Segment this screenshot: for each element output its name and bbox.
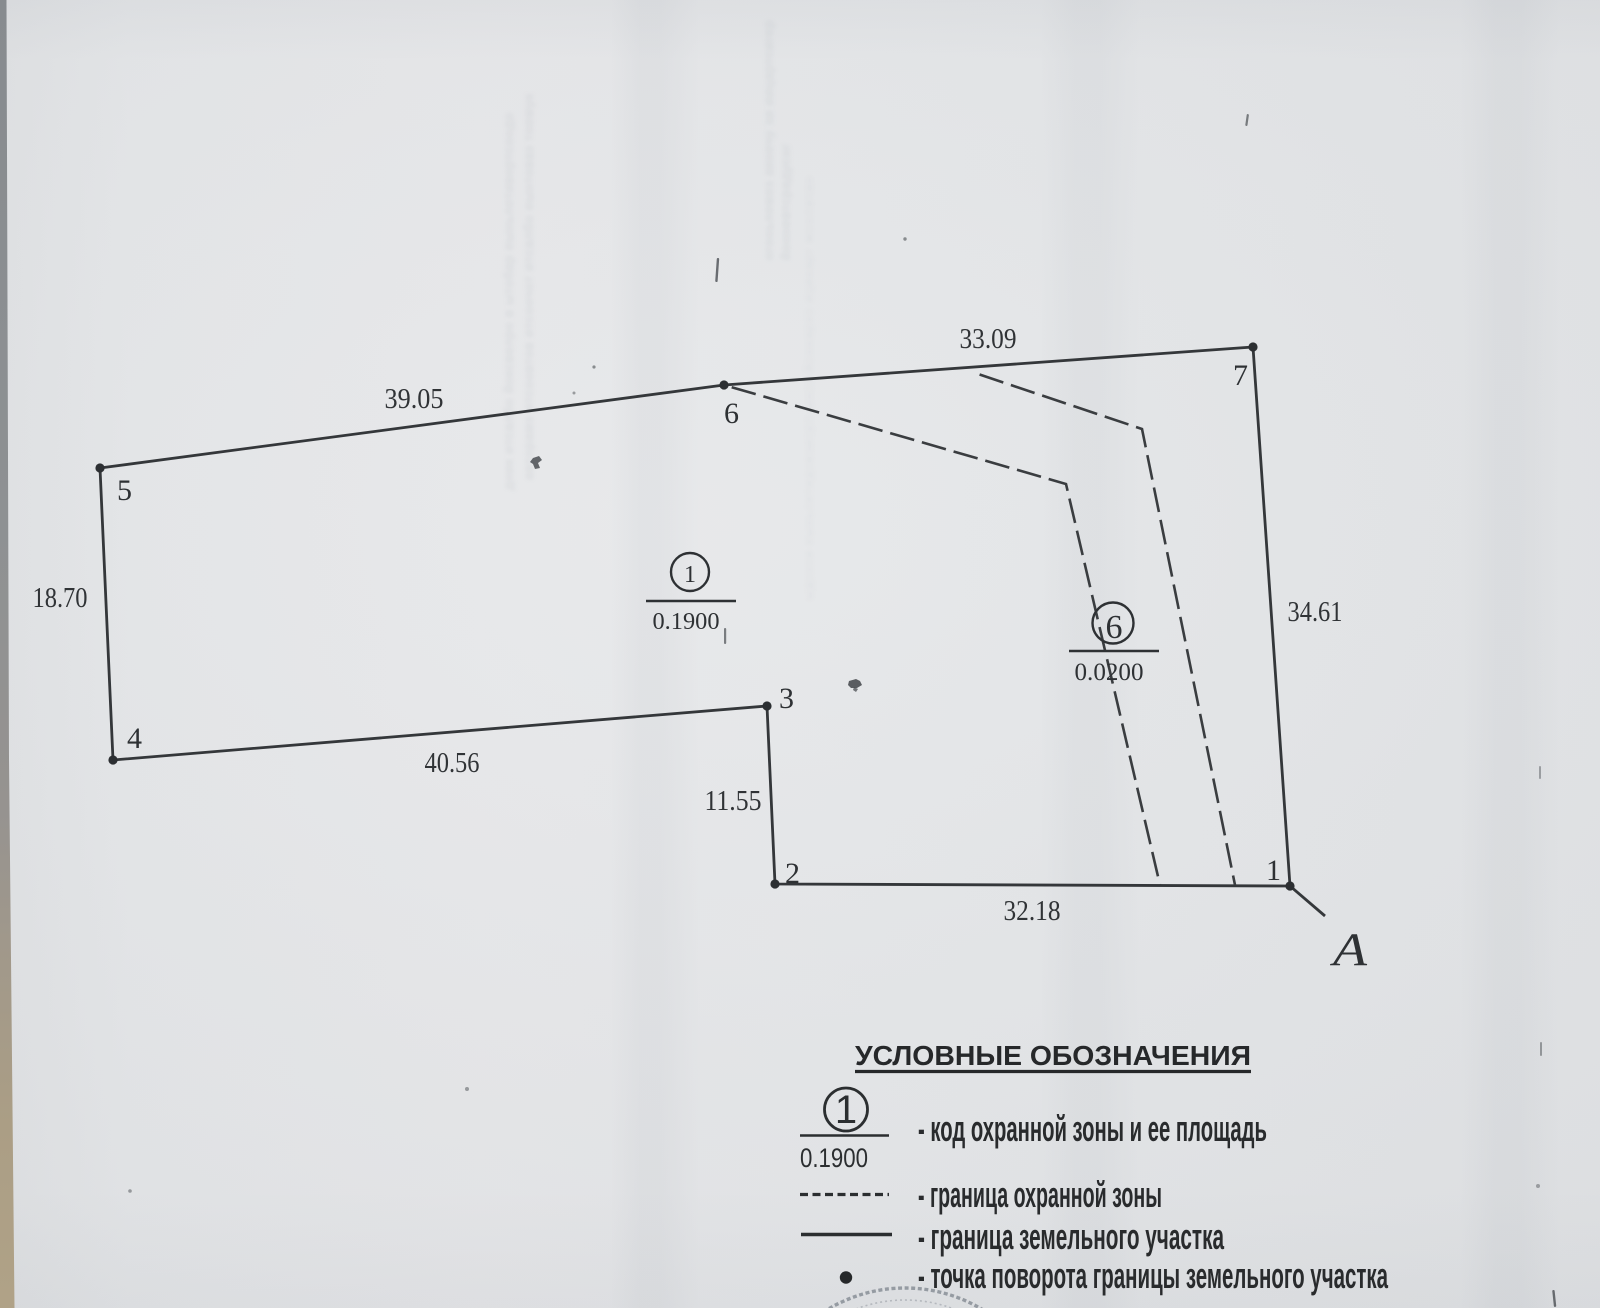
svg-text:- граница охранной зоны: - граница охранной зоны: [918, 1174, 1162, 1215]
svg-text:A: A: [1329, 924, 1367, 976]
svg-text:0.1900: 0.1900: [800, 1143, 868, 1173]
svg-text:- точка поворота границы земел: - точка поворота границы земельного учас…: [918, 1255, 1389, 1296]
svg-text:6: 6: [724, 397, 739, 430]
svg-text:1: 1: [835, 1088, 857, 1132]
svg-text:2: 2: [785, 857, 800, 890]
svg-text:УСЛОВНЫЕ ОБОЗНАЧЕНИЯ: УСЛОВНЫЕ ОБОЗНАЧЕНИЯ: [855, 1040, 1251, 1071]
svg-text:5: 5: [117, 474, 132, 507]
svg-text:7: 7: [1233, 359, 1248, 392]
svg-text:0.0200: 0.0200: [1075, 659, 1144, 686]
svg-text:11.55: 11.55: [705, 786, 762, 817]
svg-text:4: 4: [127, 722, 142, 755]
svg-text:0.1900: 0.1900: [653, 609, 720, 635]
svg-text:- код охранной зоны и ее площа: - код охранной зоны и ее площадь: [918, 1108, 1267, 1149]
svg-text:40.56: 40.56: [425, 748, 480, 779]
svg-text:1: 1: [1266, 854, 1281, 887]
svg-text:39.05: 39.05: [385, 384, 444, 415]
svg-text:32.18: 32.18: [1004, 896, 1061, 927]
svg-text:3: 3: [779, 682, 794, 715]
svg-text:- граница земельного участка: - граница земельного участка: [918, 1216, 1225, 1257]
svg-text:6: 6: [1106, 609, 1123, 646]
svg-text:1: 1: [684, 562, 696, 588]
svg-text:33.09: 33.09: [960, 324, 1017, 355]
svg-text:18.70: 18.70: [33, 583, 88, 614]
svg-text:34.61: 34.61: [1288, 597, 1343, 628]
